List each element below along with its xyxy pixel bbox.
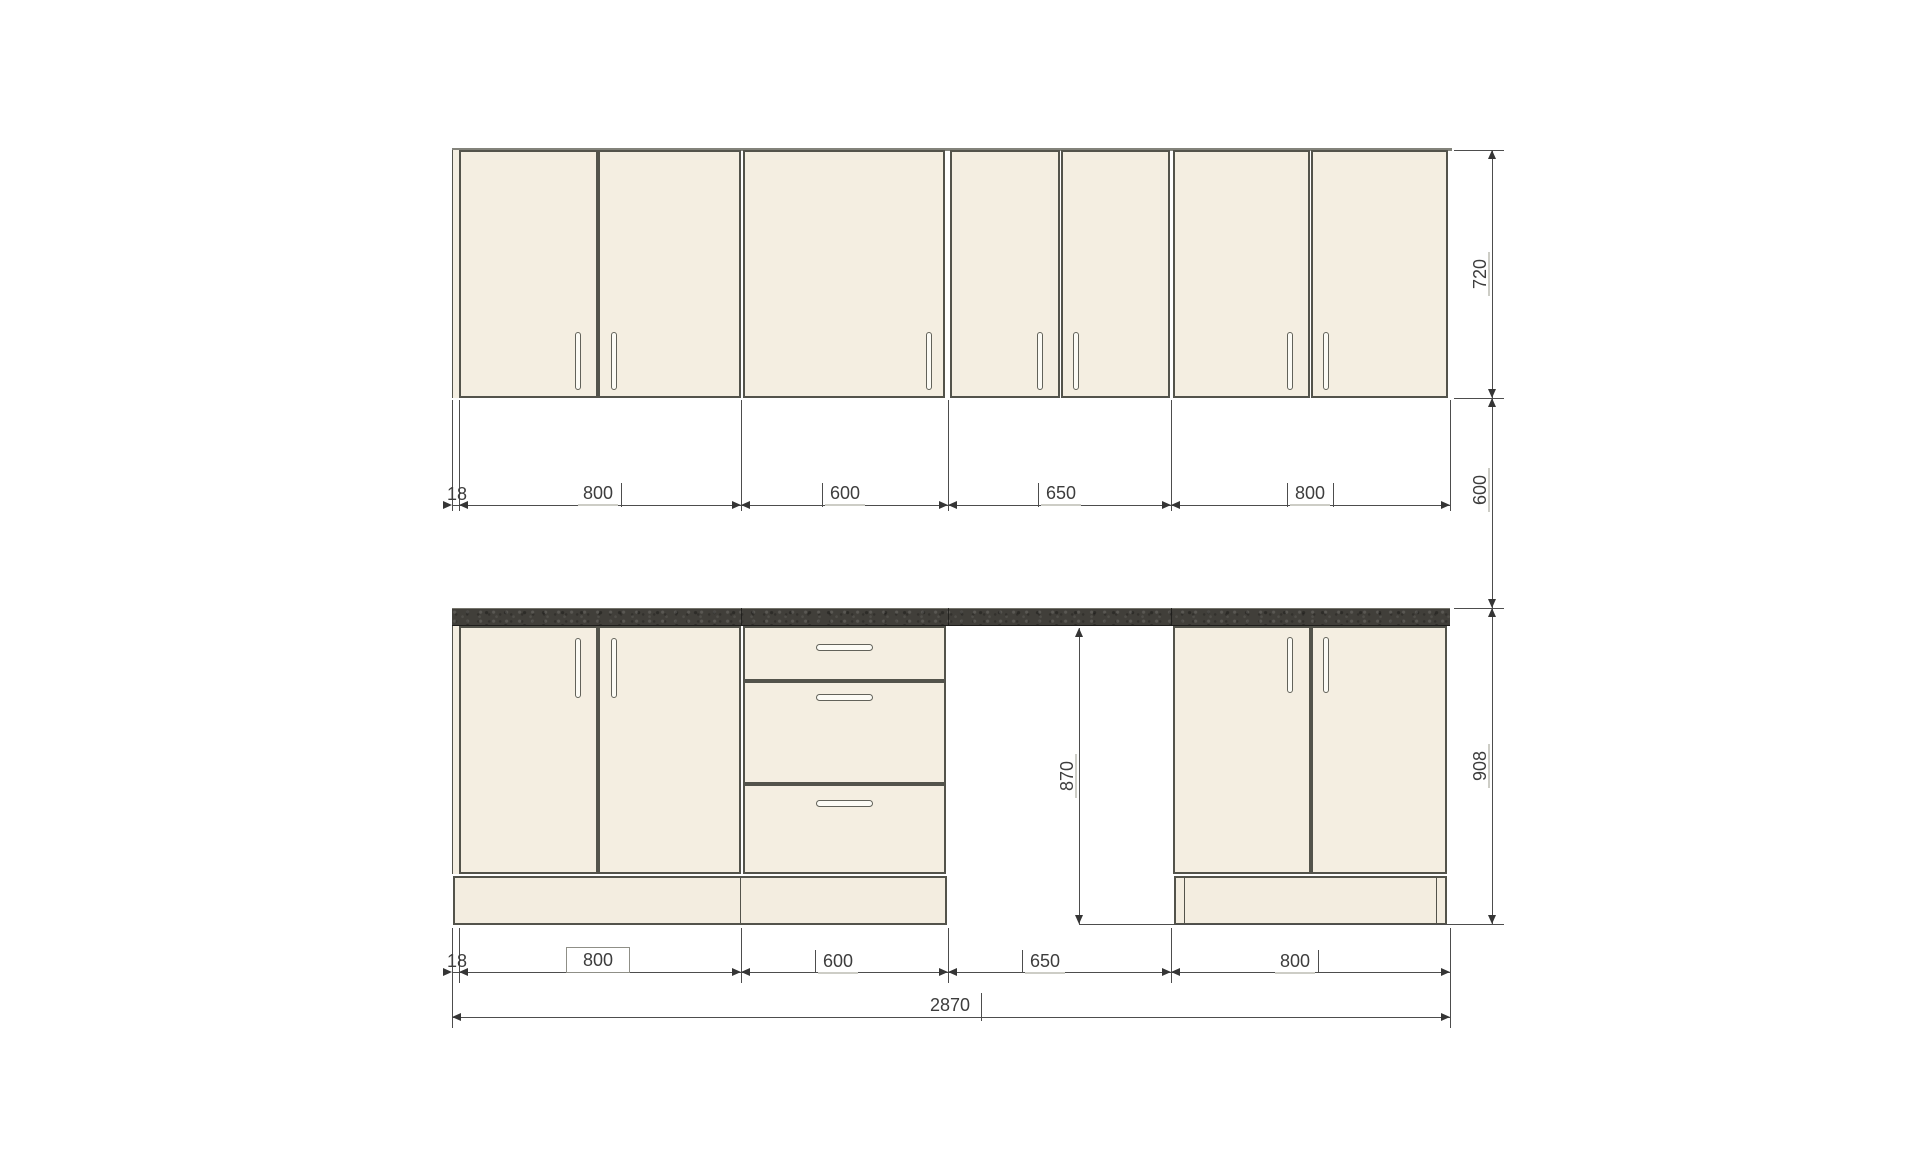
dim-arrow — [1441, 501, 1450, 509]
door-handle — [1323, 637, 1329, 693]
dim-base-cab2: 600 — [818, 951, 858, 974]
dim-tick — [1038, 483, 1039, 507]
dimension-line-vertical — [1492, 150, 1493, 924]
dim-arrow — [1488, 915, 1496, 924]
door-handle — [1287, 637, 1293, 693]
door-handle — [1323, 332, 1329, 390]
dim-arrow — [732, 501, 741, 509]
door-handle — [611, 638, 617, 698]
dim-upper-cab1: 800 — [578, 483, 618, 506]
base-cabinet2-door-right — [1311, 626, 1447, 874]
kitchen-elevation-drawing: 18 800 600 650 800 18 800 600 650 800 28… — [0, 0, 1920, 1157]
dimension-line-total — [452, 1017, 1451, 1018]
plinth-left — [453, 876, 947, 925]
drawer-handle — [816, 800, 873, 807]
dim-tick — [1318, 950, 1319, 973]
upper-cabinet2-door — [743, 150, 945, 398]
drawer-front-top — [743, 626, 946, 681]
dim-arrow — [1075, 628, 1083, 637]
door-handle — [575, 638, 581, 698]
floor-extension-line — [1079, 924, 1504, 925]
dim-arrow — [452, 1013, 461, 1021]
dim-arrow — [948, 968, 957, 976]
dim-tick — [1287, 483, 1288, 507]
dim-tick — [621, 483, 622, 507]
dimension-line-niche — [1079, 628, 1080, 924]
dim-base-filler: 18 — [445, 951, 469, 971]
door-handle — [1037, 332, 1043, 390]
dim-arrow — [1171, 968, 1180, 976]
plinth-side-line — [1184, 877, 1185, 924]
plinth-right — [1174, 876, 1447, 925]
extension-line — [1171, 400, 1172, 511]
dim-arrow — [1171, 501, 1180, 509]
upper-cabinet3-door-left — [950, 150, 1060, 398]
extension-line — [1454, 608, 1504, 609]
dim-base-cab4: 800 — [1275, 951, 1315, 974]
door-handle — [926, 332, 932, 390]
dim-arrow — [1488, 389, 1496, 398]
dim-arrow — [741, 968, 750, 976]
dim-base-cab1: 800 — [566, 947, 630, 973]
dim-base-cab3: 650 — [1025, 951, 1065, 974]
dim-tick — [1022, 950, 1023, 973]
dim-tick — [822, 483, 823, 507]
countertop-seam — [741, 608, 742, 626]
extension-line — [1454, 398, 1504, 399]
base-cabinet1-door-right — [598, 626, 741, 874]
dim-arrow — [1441, 1013, 1450, 1021]
dim-arrow — [939, 968, 948, 976]
dim-arrow — [939, 501, 948, 509]
dim-wall-gap-height: 600 — [1470, 468, 1490, 512]
dim-total-width: 2870 — [921, 995, 979, 1015]
dim-arrow — [1162, 501, 1171, 509]
door-handle — [1287, 332, 1293, 390]
dim-arrow — [948, 501, 957, 509]
dim-tick — [981, 993, 982, 1021]
countertop-seam — [948, 608, 949, 626]
door-handle — [575, 332, 581, 390]
countertop — [452, 608, 1450, 626]
dim-upper-cab4: 800 — [1290, 483, 1330, 506]
door-handle — [1073, 332, 1079, 390]
dim-arrow — [1441, 968, 1450, 976]
dim-niche-height: 870 — [1057, 754, 1077, 798]
dim-upper-filler: 18 — [445, 484, 469, 504]
extension-line — [1450, 400, 1451, 511]
dim-arrow — [1075, 915, 1083, 924]
extension-line — [741, 400, 742, 511]
dim-arrow — [1162, 968, 1171, 976]
dim-arrow — [1488, 599, 1496, 608]
plinth-divider — [740, 876, 741, 925]
plinth-side-line — [1436, 877, 1437, 924]
drawer-handle — [816, 644, 873, 651]
dim-arrow — [732, 968, 741, 976]
dim-arrow — [1488, 150, 1496, 159]
drawer-front-bottom — [743, 784, 946, 874]
dim-arrow — [1488, 398, 1496, 407]
extension-line — [1450, 928, 1451, 1028]
dim-arrow — [741, 501, 750, 509]
dim-upper-cab3: 650 — [1041, 483, 1081, 506]
dim-base-height: 908 — [1470, 744, 1490, 788]
extension-line — [1454, 150, 1504, 151]
dim-upper-cab2: 600 — [825, 483, 865, 506]
drawer-handle — [816, 694, 873, 701]
countertop-seam — [1171, 608, 1172, 626]
dim-tick — [1333, 483, 1334, 507]
dim-tick — [815, 950, 816, 973]
dim-arrow — [1488, 608, 1496, 617]
extension-line — [948, 400, 949, 511]
dim-upper-height: 720 — [1470, 252, 1490, 296]
upper-cabinet4-door-right — [1311, 150, 1448, 398]
door-handle — [611, 332, 617, 390]
upper-cabinet1-door-right — [598, 150, 741, 398]
